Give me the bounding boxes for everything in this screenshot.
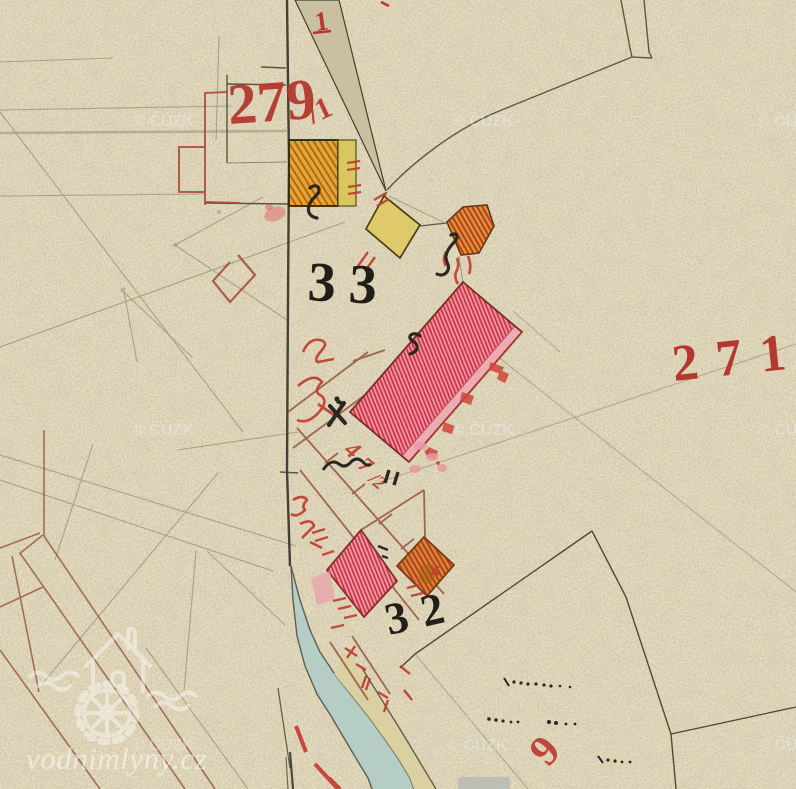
svg-text:© ČÚZK: © ČÚZK	[758, 111, 796, 130]
svg-text:© ČÚZK: © ČÚZK	[453, 420, 514, 439]
svg-text:© ČÚZK: © ČÚZK	[453, 111, 514, 130]
svg-text:© ČÚZK: © ČÚZK	[133, 111, 194, 130]
svg-text:© ČÚZK: © ČÚZK	[758, 735, 796, 754]
svg-text:vodnimlyny.cz: vodnimlyny.cz	[26, 741, 207, 776]
svg-text:© ČÚZK: © ČÚZK	[447, 735, 508, 754]
svg-text:© ČÚZK: © ČÚZK	[758, 420, 796, 439]
svg-text:© ČÚZK: © ČÚZK	[133, 420, 194, 439]
svg-text:33: 33	[306, 251, 391, 317]
